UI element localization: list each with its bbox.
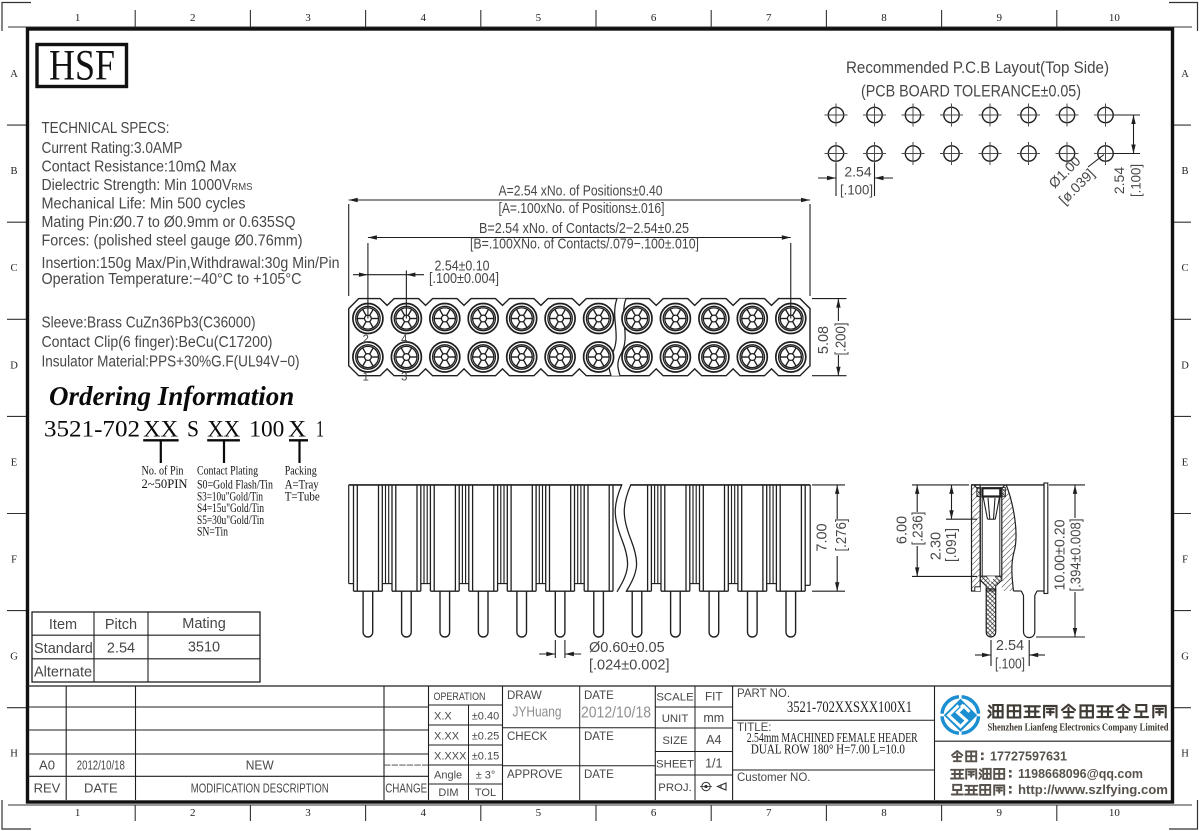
svg-text:2: 2 [363,334,369,346]
svg-text:8: 8 [881,12,887,24]
svg-text:2012/10/18: 2012/10/18 [77,758,125,773]
svg-text:3510: 3510 [188,640,220,656]
svg-text:[.236]: [.236] [911,512,927,546]
svg-text:6.00: 6.00 [895,516,911,544]
svg-text:A4: A4 [706,733,721,747]
svg-text:SHEET: SHEET [656,759,694,771]
svg-text:HSF: HSF [49,43,115,90]
svg-text:MODIFICATION DESCRIPTION: MODIFICATION DESCRIPTION [191,781,329,796]
svg-text:9: 9 [996,12,1002,24]
svg-text:X: X [288,417,306,442]
svg-text:Contact Plating: Contact Plating [197,464,258,478]
svg-text:2: 2 [190,807,196,819]
svg-text:No. of Pin: No. of Pin [142,464,184,478]
svg-text:4: 4 [401,334,408,346]
svg-text:5.08: 5.08 [816,326,832,354]
svg-text:D: D [10,360,18,371]
svg-text:Customer NO.: Customer NO. [737,772,811,784]
svg-text:XX: XX [207,417,240,442]
svg-text:Dielectric Strength: Min 1000V: Dielectric Strength: Min 1000VRMS [42,177,253,194]
svg-text:2.54: 2.54 [844,164,871,180]
svg-text:DUAL ROW 180° H=7.00 L=10.0: DUAL ROW 180° H=7.00 L=10.0 [751,742,905,757]
svg-text:[.100±0.004]: [.100±0.004] [429,270,499,287]
svg-text:2.54: 2.54 [996,638,1024,654]
svg-text:7: 7 [766,807,772,819]
svg-text:TECHNICAL SPECS:: TECHNICAL SPECS: [42,120,170,137]
svg-text:S: S [187,417,199,442]
svg-text:7: 7 [766,12,772,24]
svg-text:DIM: DIM [438,787,458,799]
svg-text:E: E [1182,457,1188,468]
svg-text:[B=.100XNo. of Contacts/.079−.: [B=.100XNo. of Contacts/.079−.100±.010] [470,236,699,253]
svg-text:±0.15: ±0.15 [472,751,499,763]
svg-text:FIT: FIT [705,690,723,704]
svg-text:Mating: Mating [182,616,226,632]
svg-text:3521-702XXSXX100X1: 3521-702XXSXX100X1 [787,699,912,716]
svg-text:APPROVE: APPROVE [507,769,563,781]
svg-text:17727597631: 17727597631 [990,749,1067,764]
svg-text:JYHuang: JYHuang [513,704,562,721]
svg-text:Forces: (polished steel gauge: Forces: (polished steel gauge Ø0.76mm) [42,233,303,250]
svg-text:T=Tube: T=Tube [285,489,320,503]
svg-text:−−−−−−: −−−−−− [383,758,429,773]
svg-text:A=2.54 xNo. of Positions±0.40: A=2.54 xNo. of Positions±0.40 [499,183,663,200]
svg-text:SIZE: SIZE [662,735,688,747]
svg-text:Contact Resistance:10mΩ Max: Contact Resistance:10mΩ Max [42,159,237,176]
svg-text:Mating Pin:Ø0.7 to Ø0.9mm or 0: Mating Pin:Ø0.7 to Ø0.9mm or 0.635SQ [42,214,296,231]
svg-text:±0.25: ±0.25 [472,731,499,743]
svg-text:OPERATION: OPERATION [434,691,486,703]
svg-text:Packing: Packing [285,464,317,478]
svg-text:[.091]: [.091] [944,528,960,562]
svg-text:[.100]: [.100] [840,182,873,198]
svg-text:1: 1 [75,807,81,819]
svg-text:3521-702: 3521-702 [44,417,140,442]
svg-text:XX: XX [143,417,178,442]
svg-text:[A=.100xNo. of Positions±.016]: [A=.100xNo. of Positions±.016] [499,200,665,217]
svg-text:[.100]: [.100] [995,657,1025,673]
svg-text:DATE: DATE [584,690,614,702]
svg-text:B: B [1181,166,1188,177]
svg-text:PART NO.: PART NO. [737,688,790,700]
svg-text:1: 1 [75,12,81,24]
svg-text:±0.40: ±0.40 [472,711,499,723]
svg-text:10.00±0.20: 10.00±0.20 [1053,520,1069,591]
svg-text:X.X: X.X [434,711,452,723]
svg-text:B=2.54 xNo. of Contacts/2−2.54: B=2.54 xNo. of Contacts/2−2.54±0.25 [479,220,689,237]
svg-text:Operation Temperature:−40°C to: Operation Temperature:−40°C to +105°C [42,271,302,288]
svg-text:Angle: Angle [434,770,462,782]
svg-text:CHECK: CHECK [507,731,548,743]
svg-text:[.100]: [.100] [1128,164,1144,197]
svg-text:NEW: NEW [246,758,275,773]
svg-text:X.XX: X.XX [434,731,460,743]
svg-text:SCALE: SCALE [656,692,694,704]
svg-text:Pitch: Pitch [105,617,137,633]
svg-text:4: 4 [420,807,426,819]
svg-text:CHANGE: CHANGE [385,782,427,796]
svg-text:(PCB BOARD TOLERANCE±0.05): (PCB BOARD TOLERANCE±0.05) [861,82,1081,101]
svg-text:REV: REV [34,781,61,796]
svg-text:SN=Tin: SN=Tin [197,525,228,539]
svg-text:1198668096@qq.com: 1198668096@qq.com [1018,766,1143,781]
svg-text:Recommended P.C.B Layout(Top S: Recommended P.C.B Layout(Top Side) [846,58,1109,77]
svg-text:[.276]: [.276] [834,519,850,552]
svg-text:F: F [11,555,17,566]
svg-text:2: 2 [190,12,196,24]
svg-text:5: 5 [536,12,542,24]
svg-text:DATE: DATE [584,731,614,743]
svg-text:B: B [10,166,17,177]
svg-text:3: 3 [401,371,407,383]
svg-text:3: 3 [305,12,311,24]
svg-text:10: 10 [1109,807,1121,819]
svg-text:5: 5 [536,807,542,819]
svg-text:DATE: DATE [584,769,614,781]
svg-text:1: 1 [316,417,324,442]
svg-text:2.54: 2.54 [1111,167,1127,194]
svg-text:1/1: 1/1 [705,757,722,771]
svg-text:Item: Item [49,617,77,633]
svg-text:7.00: 7.00 [815,523,831,551]
svg-text:G: G [10,652,18,663]
svg-text:Ø0.60±0.05: Ø0.60±0.05 [589,640,665,656]
svg-text:Contact Clip(6 finger):BeCu(C1: Contact Clip(6 finger):BeCu(C17200) [42,334,273,351]
svg-text:9: 9 [996,807,1002,819]
svg-text:4: 4 [420,12,426,24]
svg-text:PROJ.: PROJ. [658,782,692,794]
svg-text:http://www.szlfying.com: http://www.szlfying.com [1018,782,1168,797]
svg-text:6: 6 [651,807,657,819]
svg-text:2~50PIN: 2~50PIN [142,477,188,491]
svg-text:Insertion:150g Max/Pin,Withdra: Insertion:150g Max/Pin,Withdrawal:30g Mi… [42,255,340,272]
svg-text:C: C [10,263,17,274]
svg-text:UNIT: UNIT [662,713,689,725]
svg-text:H: H [1181,749,1189,760]
svg-text:G: G [1181,652,1189,663]
svg-text:2.30: 2.30 [929,532,945,560]
svg-text:Insulator Material:PPS+30%G.F(: Insulator Material:PPS+30%G.F(UL94V−0) [42,353,300,370]
svg-text:Mechanical Life: Min 500 cycle: Mechanical Life: Min 500 cycles [42,196,246,213]
svg-text:E: E [11,457,17,468]
svg-text:Shenzhen Lianfeng Electronics: Shenzhen Lianfeng Electronics Company Li… [988,722,1169,734]
svg-text:TOL: TOL [475,787,496,799]
svg-text:DRAW: DRAW [507,690,542,702]
svg-text:2.54: 2.54 [107,641,135,657]
svg-text:X.XXX: X.XXX [434,751,467,763]
svg-text:10: 10 [1109,12,1121,24]
svg-text:± 3°: ± 3° [476,770,496,782]
svg-text:Alternate: Alternate [34,665,92,681]
svg-text:DATE: DATE [84,781,118,796]
svg-text:Standard: Standard [34,641,93,657]
svg-text:F: F [1182,555,1188,566]
svg-text:[.394±0.008]: [.394±0.008] [1069,519,1085,592]
svg-text:6: 6 [651,12,657,24]
svg-text:8: 8 [881,807,887,819]
svg-text:1: 1 [363,371,369,383]
svg-text:Current Rating:3.0AMP: Current Rating:3.0AMP [42,140,183,157]
svg-text:3: 3 [305,807,311,819]
svg-text:A: A [1181,69,1189,80]
svg-text:[.024±0.002]: [.024±0.002] [589,658,670,674]
svg-text:2012/10/18: 2012/10/18 [581,705,651,722]
svg-text:mm: mm [703,711,724,725]
svg-text:[.200]: [.200] [834,323,850,356]
svg-text:A: A [10,69,18,80]
svg-text:Ordering Information: Ordering Information [49,381,294,411]
svg-text:D: D [1181,360,1189,371]
svg-text:Sleeve:Brass CuZn36Pb3(C36000): Sleeve:Brass CuZn36Pb3(C36000) [42,315,256,332]
svg-text:H: H [10,749,18,760]
svg-text:A0: A0 [39,758,55,773]
svg-text:C: C [1181,263,1188,274]
svg-text:100: 100 [249,417,284,442]
